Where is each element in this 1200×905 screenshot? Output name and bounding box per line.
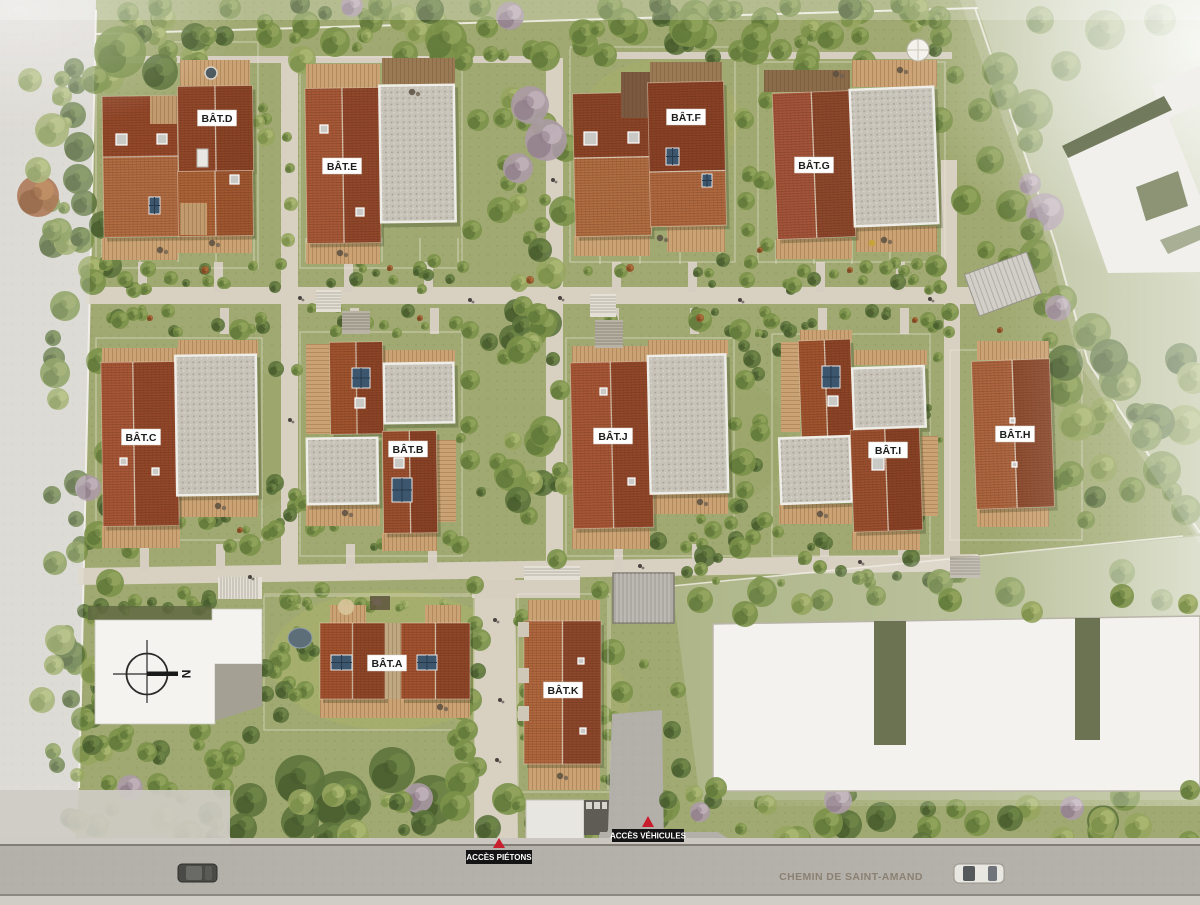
svg-text:ACCÈS PIÉTONS: ACCÈS PIÉTONS [466,853,532,862]
svg-text:BÂT.B: BÂT.B [393,443,424,456]
svg-text:BÂT.K: BÂT.K [548,684,579,697]
svg-text:BÂT.E: BÂT.E [327,160,357,173]
svg-text:BÂT.A: BÂT.A [372,657,403,670]
svg-text:BÂT.G: BÂT.G [798,159,830,172]
svg-text:BÂT.H: BÂT.H [1000,428,1031,441]
svg-text:N: N [179,670,193,679]
svg-text:BÂT.D: BÂT.D [202,112,233,125]
svg-text:CHEMIN DE SAINT-AMAND: CHEMIN DE SAINT-AMAND [779,871,923,883]
svg-text:BÂT.J: BÂT.J [598,430,627,443]
svg-text:ACCÈS VÉHICULES: ACCÈS VÉHICULES [610,832,687,841]
svg-text:BÂT.F: BÂT.F [671,111,701,124]
svg-text:BÂT.C: BÂT.C [126,431,157,444]
svg-text:BÂT.I: BÂT.I [875,444,901,457]
